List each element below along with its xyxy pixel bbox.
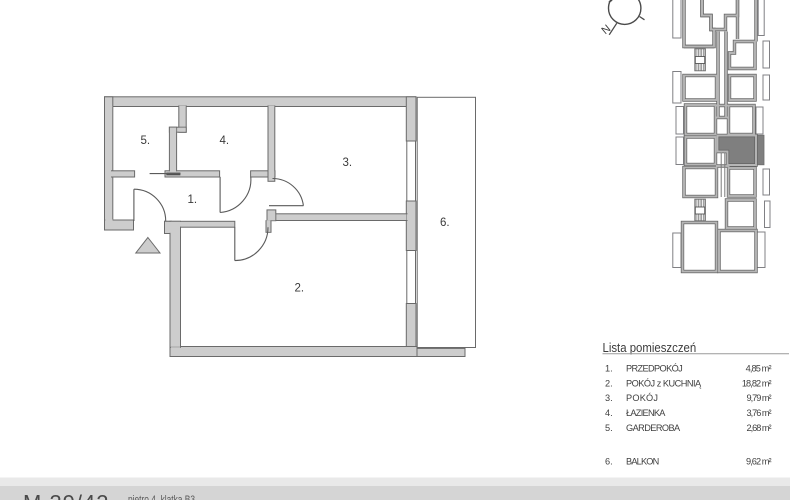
svg-text:5.: 5. <box>141 135 151 147</box>
svg-text:M 39/42: M 39/42 <box>23 490 110 500</box>
svg-text:2,68 m²: 2,68 m² <box>747 423 772 433</box>
svg-text:6.: 6. <box>605 457 613 467</box>
svg-text:1.: 1. <box>605 364 613 374</box>
svg-text:PRZEDPOKÓJ: PRZEDPOKÓJ <box>626 364 683 374</box>
svg-text:6.: 6. <box>440 217 450 229</box>
svg-text:2.: 2. <box>295 283 305 295</box>
svg-text:POKÓJ z KUCHNIĄ: POKÓJ z KUCHNIĄ <box>626 378 702 388</box>
svg-text:3,76 m²: 3,76 m² <box>747 408 772 418</box>
svg-text:4.: 4. <box>605 408 613 418</box>
svg-text:1.: 1. <box>188 194 198 206</box>
svg-text:2.: 2. <box>605 378 613 388</box>
svg-text:GARDEROBA: GARDEROBA <box>626 423 681 433</box>
svg-text:piętro 4, klatka B3: piętro 4, klatka B3 <box>128 494 195 500</box>
svg-text:5.: 5. <box>605 423 613 433</box>
svg-text:4,85 m²: 4,85 m² <box>746 364 772 374</box>
svg-text:9,79 m²: 9,79 m² <box>747 393 772 403</box>
svg-text:ŁAZIENKA: ŁAZIENKA <box>626 408 666 418</box>
svg-text:3.: 3. <box>605 393 613 403</box>
svg-text:BALKON: BALKON <box>626 457 659 467</box>
svg-text:9,62 m²: 9,62 m² <box>746 457 772 467</box>
svg-text:18,82 m²: 18,82 m² <box>742 378 772 388</box>
svg-text:4.: 4. <box>220 135 230 147</box>
svg-text:POKÓJ: POKÓJ <box>626 393 658 403</box>
svg-text:3.: 3. <box>343 157 353 169</box>
svg-text:Lista pomieszczeń: Lista pomieszczeń <box>603 341 697 355</box>
